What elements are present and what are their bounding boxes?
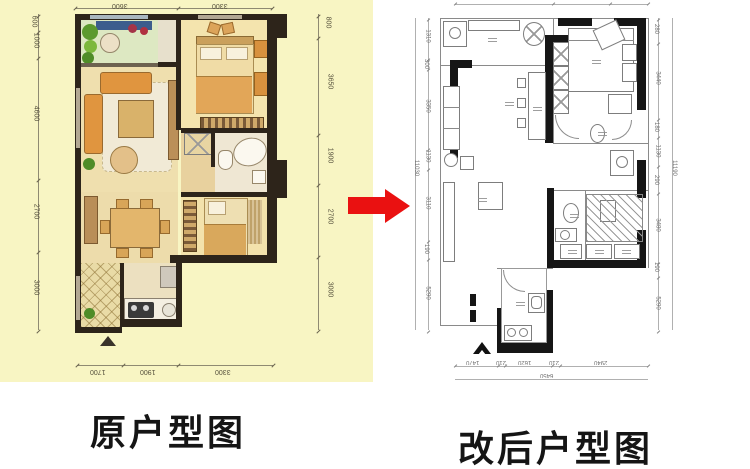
dim-label: 3300 [215,368,231,375]
dim-label: 1700 [90,368,106,375]
wall-segment [176,263,182,323]
dim-label: 3650 [326,74,333,90]
nightstand-outline [622,44,637,61]
nightstand-1 [254,40,268,58]
wall-segment [548,260,643,268]
closet-hatched [586,194,643,242]
burner-2 [143,305,149,311]
wall-segment [170,255,277,263]
sofa-division [443,128,460,129]
wall-line [440,325,498,326]
dim-label: 800 [324,17,331,29]
dim-label: 190 [423,244,429,254]
bath-sink [252,170,266,184]
nightstand-2 [254,72,268,96]
room-label-mark [478,196,487,202]
plant-2 [84,40,97,53]
room-label-mark [622,248,631,254]
door-leaf [470,310,476,322]
dim-label: 1000 [32,33,39,49]
dim-label: 180 [653,122,659,132]
bed2-blanket [204,224,246,257]
chair-outline [517,98,526,108]
door-arc [555,115,579,139]
dim-label: 2700 [32,204,39,220]
basin-circle [560,230,570,240]
dim-label: 3300 [212,2,228,9]
dim-label: 1130 [654,145,660,158]
window [76,88,80,148]
dim-label: 2700 [326,209,333,225]
dim-label: 210 [496,359,506,365]
window [90,15,148,19]
wall-segment [637,18,646,110]
chair-outline [517,118,526,128]
wall-segment [547,290,553,345]
caption-modified-plan: 改后户型图 [458,420,653,469]
dim-tick [427,330,431,334]
flowers-red-2 [140,27,148,35]
burner-1 [131,305,137,311]
counter-top [468,20,520,31]
dining-table [110,208,160,248]
dresser-outline [608,94,632,114]
balcony-door-track [81,63,158,67]
kitchen-sink [162,303,176,317]
window [76,276,80,320]
dim-label: 3000 [326,282,333,298]
room-label-mark [570,212,579,218]
coffee-table [118,100,154,138]
dim-label: 1620 [518,359,531,365]
tv-cabinet-outline [443,182,455,262]
dim-line-total [455,379,648,380]
wall-segment [75,327,122,333]
chair-4 [140,248,153,258]
room-label-mark [598,130,607,136]
bed1-blanket [196,76,252,113]
dim-label: 5290 [655,296,661,309]
plant-living [83,158,95,170]
wall-pier [277,160,287,198]
sofa-division [443,107,460,108]
dim-label: 210 [549,359,559,365]
flowers-red [128,24,137,33]
entry-arrow-notch [478,350,486,355]
dim-label: 3110 [424,197,430,210]
nightstand-outline [622,63,637,82]
side-table-outline [444,153,458,167]
utility-nook-floor [158,20,178,66]
sideboard [84,196,98,244]
room-label-mark [595,248,604,254]
dim-label: 1900 [140,368,156,375]
wall-segment [211,133,215,167]
plant-1 [82,24,98,40]
dim-line-right [318,14,319,330]
transform-arrow-head [385,189,410,223]
sofa-outline [443,86,460,150]
dim-label: 5290 [425,286,431,299]
dim-tick [657,330,661,334]
caption-original-plan: 原户型图 [90,404,246,456]
hall-closet [184,133,212,155]
chair-outline [517,78,526,88]
bed2-pillow [208,201,226,215]
dim-tick [647,364,651,368]
dim-label-total: 6450 [540,372,553,378]
wardrobe-2 [183,200,197,252]
room-label-mark [592,58,601,64]
armchair-outline [460,156,474,170]
wall-pier [277,14,287,38]
dim-label: 3600 [112,2,128,9]
plant-balcony-bottom [84,308,95,319]
bed1-pillow-2 [226,47,248,60]
dim-label: 3350 [425,99,431,112]
dim-label: 1310 [425,29,431,42]
burner-circle [507,328,516,337]
dim-tick [647,2,651,6]
transform-arrow-shaft [348,197,385,214]
balcony-table [100,33,120,53]
wall-segment [545,35,553,143]
sink-basin [531,296,542,309]
dim-label: 190 [653,262,659,272]
dim-line-bottom [77,365,273,366]
screenshot-stage: 3600 3300 1700 1900 3300 600 1000 4600 2… [0,0,750,469]
dim-label: 600 [30,16,37,28]
bed1-pillow-1 [200,47,222,60]
dim-label: 3000 [32,280,39,296]
wardrobe-cell [553,42,569,66]
curtain-strip [248,200,262,244]
door-arc [612,120,632,140]
wall-segment [120,263,124,323]
wall-segment [558,18,592,26]
wall-segment [267,14,277,263]
wall-segment [181,192,267,197]
fan-symbol [523,22,545,46]
wall-segment [158,62,178,67]
dim-line-top [75,8,273,9]
room-label-mark [505,100,514,106]
dim-label: 2940 [594,359,607,365]
room-label-mark [488,36,497,42]
chair-3 [116,248,129,258]
dim-label: 1900 [326,148,333,164]
wall-segment [181,128,267,133]
fridge-circle [449,27,461,39]
dim-label-total: 11190 [671,160,677,176]
wardrobe-cell [553,90,569,114]
wall-line [553,143,649,144]
toilet [218,150,233,170]
dim-label: 1130 [424,150,430,163]
dim-label: 1470 [466,359,479,365]
wall-segment [497,343,553,353]
room-label-mark [533,105,542,111]
dim-label: 3440 [655,71,661,84]
dim-label: 280 [653,24,659,34]
loveseat [100,72,152,94]
window [198,15,242,19]
wardrobe-cell [553,66,569,90]
round-chair [110,146,138,174]
burner-circle [519,328,528,337]
sofa [84,94,103,154]
room-label-mark [568,248,577,254]
dim-label: 300 [423,59,429,69]
wall-line [553,190,649,191]
wall-segment [547,188,554,268]
room-label-mark [516,300,525,306]
chair-5 [100,220,110,234]
chair-6 [160,220,170,234]
wall-segment [120,319,182,327]
dim-label: 4600 [32,106,39,122]
wall-segment [637,160,646,198]
wall-segment [176,14,181,130]
entry-arrow-icon [100,336,116,346]
chair-1 [116,199,129,209]
dim-label-total: 11030 [413,160,419,176]
dim-label: 3480 [655,218,661,231]
shower-drain [616,156,628,168]
door-leaf [470,294,476,306]
dim-label: 290 [653,175,659,185]
chair-2 [140,199,153,209]
